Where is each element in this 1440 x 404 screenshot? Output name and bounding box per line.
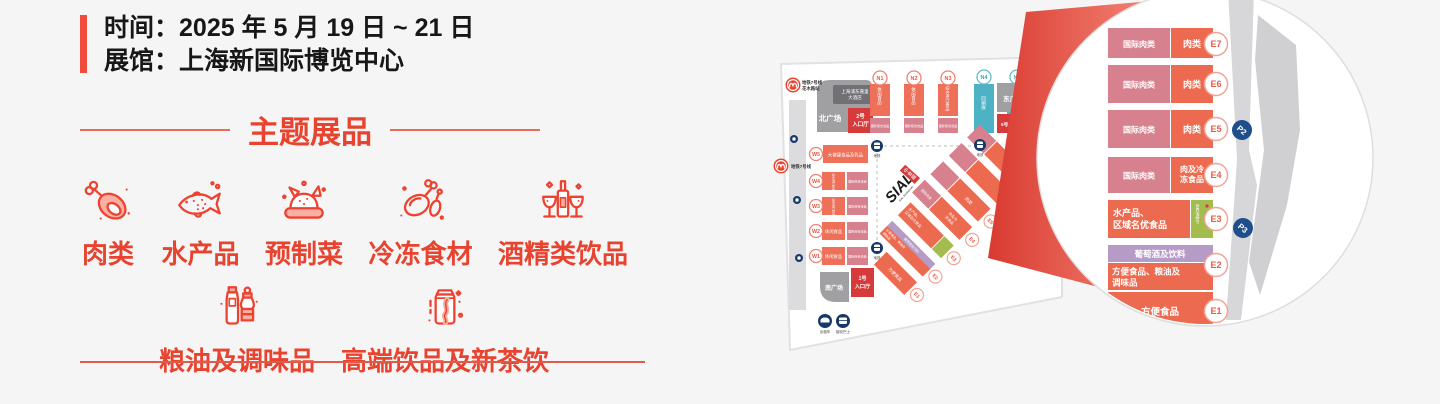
hall-badge: E3 xyxy=(1210,214,1221,224)
hall-category: 国际肉类 xyxy=(1123,171,1155,181)
expo-banner: 时间：2025 年 5 月 19 日 ~ 21 日 展馆：上海新国际博览中心 主… xyxy=(0,0,1440,404)
taxi-label: 出租车 xyxy=(820,329,831,334)
hall-badge: N4 xyxy=(981,75,988,81)
hall-badge: W3 xyxy=(812,204,820,210)
entrance-hall-1 xyxy=(851,268,874,297)
shuttle-icon-group: 接驳巴士 xyxy=(836,314,851,334)
hall-badge: W5 xyxy=(812,152,820,158)
hall-badge: E2 xyxy=(1210,260,1221,270)
hall-subcategory: 国际综合食品 xyxy=(848,229,867,234)
hall-category: 综合进口食品 xyxy=(945,85,951,113)
hall-side-label: 世界海鲜节 xyxy=(1196,203,1201,225)
hall-badge: N1 xyxy=(877,76,884,82)
hall-category: 综合进口食品 xyxy=(832,197,836,216)
taxi-icon-group: 出租车 xyxy=(818,314,832,334)
north-plaza-label: 北广场 xyxy=(819,113,842,123)
metro-label: 花木路站 xyxy=(802,85,820,92)
hall-category: 方便食品、粮油及 xyxy=(1112,267,1181,277)
hall-category: 国际肉类 xyxy=(1123,125,1155,135)
hall-category: 休闲食品 xyxy=(911,86,917,106)
hall-badge: W2 xyxy=(812,229,820,235)
hall-category: 调味品 xyxy=(1112,278,1138,288)
entrance-hall-2 xyxy=(848,108,873,133)
hall-category: 冻食品 xyxy=(1180,174,1204,184)
hall-category: 国际肉类 xyxy=(1123,80,1155,90)
hall-category: 国际肉类 xyxy=(1123,39,1155,49)
festival-dot xyxy=(1205,204,1208,207)
hall-subcategory: 国际综合食品 xyxy=(848,179,867,184)
south-plaza-label: 南广场 xyxy=(825,284,843,292)
hall-badge: N2 xyxy=(911,76,918,82)
hall-category: 休闲食品 xyxy=(877,86,883,106)
metro-station-label: 地铁 xyxy=(874,153,881,158)
hall-subcategory: 国际综合食品 xyxy=(848,204,867,209)
metro-label: 地铁7号线 xyxy=(802,79,823,86)
floorplan-graphic: 上海浦东嘉里 大酒店 北广场 2号 入口厅 休闲食品 国际综合食品 休闲食品 国… xyxy=(0,0,1440,404)
hall-badge: E1 xyxy=(1210,306,1221,316)
metro-label: 地铁7号线 xyxy=(791,163,812,170)
hall-badge: N3 xyxy=(945,76,952,82)
west-road xyxy=(789,100,806,310)
hall-category: 水产品、 xyxy=(1113,207,1149,218)
hall-category: 区域名优食品 xyxy=(1113,219,1167,230)
hall-subcategory: 国际综合食品 xyxy=(848,254,867,259)
hall-subcategory: 国际综合食品 xyxy=(871,123,890,128)
hall-category: 休闲食品 xyxy=(825,228,842,235)
hall-subcategory: 国际综合食品 xyxy=(905,123,924,128)
hall-category: 肉类 xyxy=(1183,79,1202,90)
hall-badge: E7 xyxy=(1210,39,1221,49)
w-halls: 大健康食品及乳品 综合进口食品 国际综合食品 综合进口食品 国际综合食品 休闲食… xyxy=(822,145,868,265)
hall-category: 肉及冷 xyxy=(1180,164,1204,174)
hall-category: 肉类 xyxy=(1183,124,1202,135)
entrance-1-label: 1号 xyxy=(858,274,866,282)
hall-category: 同期展 xyxy=(981,96,987,111)
hall-badge: E4 xyxy=(1210,170,1221,180)
hotel-name: 大酒店 xyxy=(848,94,862,101)
hall-badge: E5 xyxy=(1210,124,1221,134)
hotel-name: 上海浦东嘉里 xyxy=(841,88,869,95)
hall-category: 肉类 xyxy=(1183,38,1202,49)
hall-badge: W4 xyxy=(812,179,820,185)
entrance-1-label: 入口厅 xyxy=(854,282,871,290)
hall-subcategory: 国际综合食品 xyxy=(939,123,958,128)
metro-station-label: 地铁 xyxy=(874,255,881,260)
entrance-2-label: 入口厅 xyxy=(851,120,869,128)
hall-category: 大健康食品及乳品 xyxy=(828,152,864,159)
metro-station-label: 地铁 xyxy=(977,152,984,157)
shuttle-label: 接驳巴士 xyxy=(836,329,851,334)
hall-badge: E6 xyxy=(1210,79,1221,89)
hall-category: 葡萄酒及饮料 xyxy=(1133,249,1186,259)
entrance-2-label: 2号 xyxy=(856,112,865,120)
hall-category: 休闲食品 xyxy=(825,253,842,260)
hall-badge: W1 xyxy=(812,254,820,260)
hall-category: 综合进口食品 xyxy=(832,172,836,191)
